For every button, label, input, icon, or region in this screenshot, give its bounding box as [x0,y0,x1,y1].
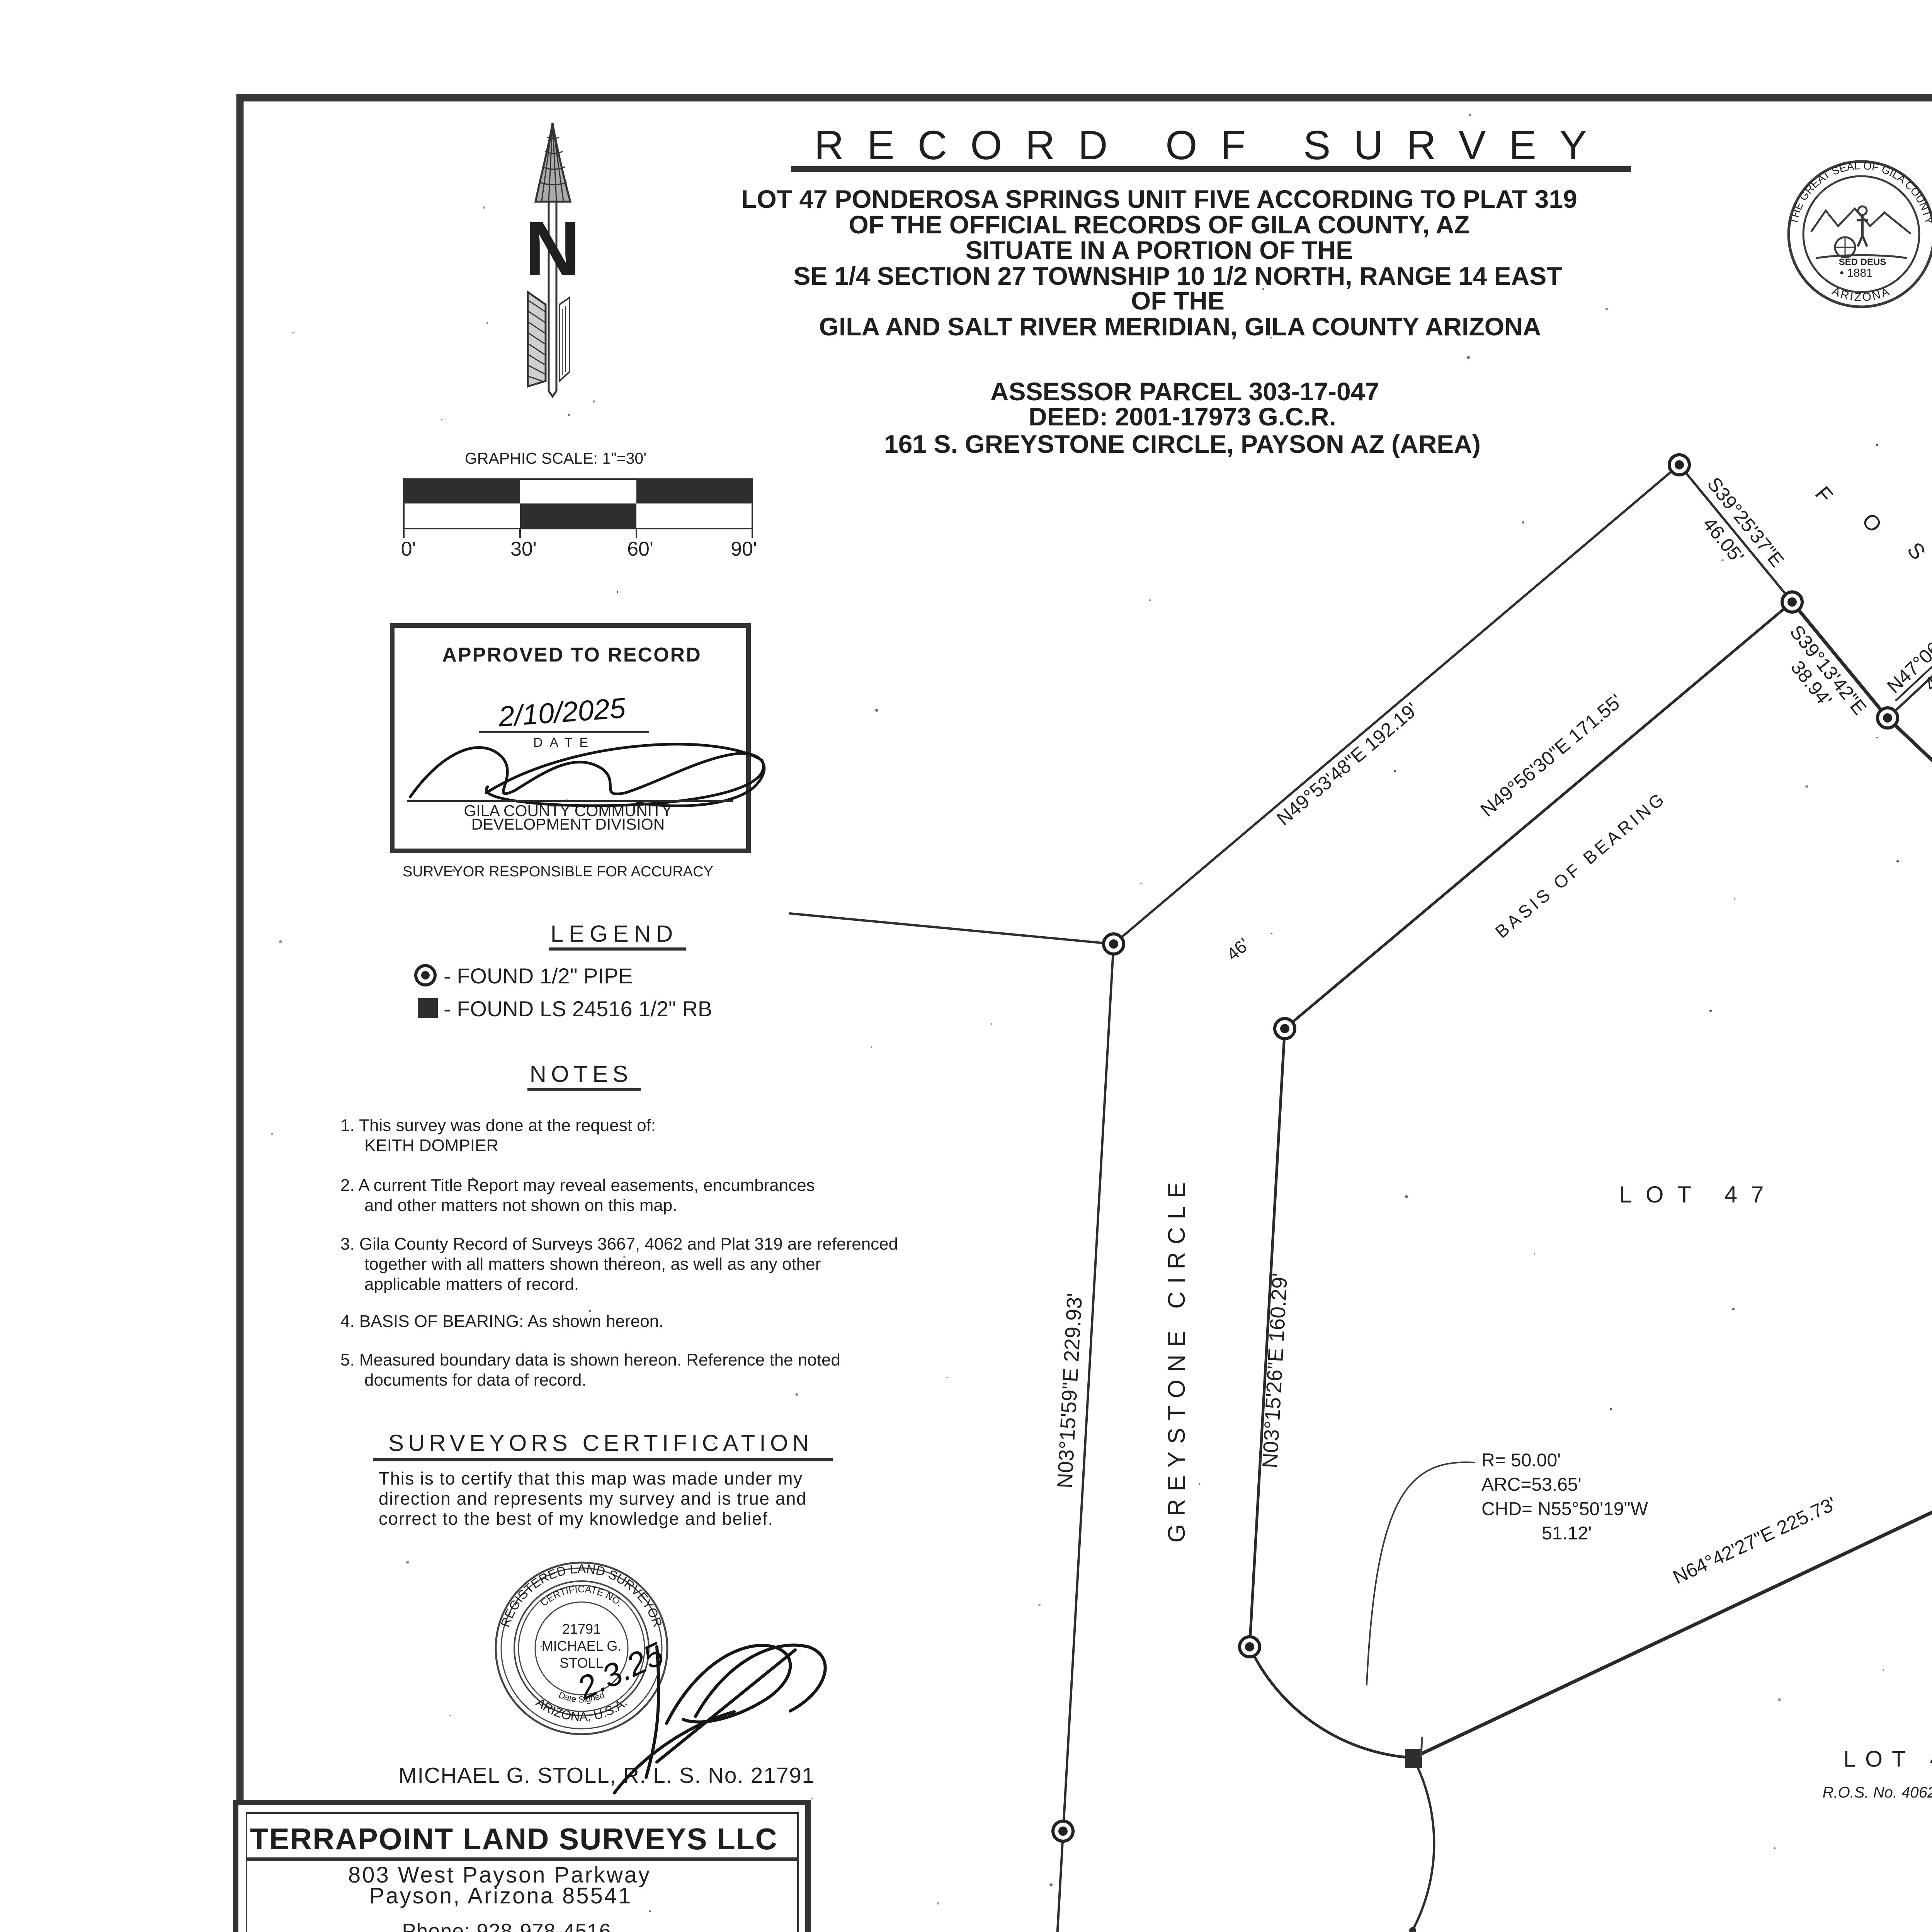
svg-text:90': 90' [731,538,757,560]
svg-text:CHD= N55°50'19"W: CHD= N55°50'19"W [1481,1499,1648,1519]
svg-text:TERRAPOINT LAND SURVEYS LLC: TERRAPOINT LAND SURVEYS LLC [250,1822,778,1856]
svg-text:30': 30' [510,538,537,560]
svg-text:• 1881: • 1881 [1840,267,1873,279]
svg-text:5. Measured boundary data is s: 5. Measured boundary data is shown hereo… [340,1350,840,1369]
svg-text:3. Gila County Record of Surve: 3. Gila County Record of Surveys 3667, 4… [340,1235,898,1253]
svg-text:2/10/2025: 2/10/2025 [497,692,627,733]
svg-text:DEED: 2001-17973 G.C.R.: DEED: 2001-17973 G.C.R. [1029,402,1336,431]
svg-text:R.O.S. No. 4062 G.C.R.: R.O.S. No. 4062 G.C.R. [1823,1784,1932,1801]
svg-text:60': 60' [627,538,653,560]
svg-text:correct to the best of my know: correct to the best of my knowledge and … [379,1509,774,1529]
svg-text:N49°56'30"E 171.55': N49°56'30"E 171.55' [1476,690,1626,821]
svg-text:N49°53'48"E 192.19': N49°53'48"E 192.19' [1272,698,1422,830]
svg-text:GILA AND SALT RIVER MERIDIAN,: GILA AND SALT RIVER MERIDIAN, GILA COUNT… [819,312,1541,341]
svg-text:F: F [1811,481,1838,507]
svg-text:R= 50.00': R= 50.00' [1481,1450,1561,1471]
svg-text:N64°42'27"E 225.73': N64°42'27"E 225.73' [1670,1493,1840,1588]
svg-text:- FOUND 1/2" PIPE: - FOUND 1/2" PIPE [444,964,633,988]
svg-text:N: N [525,206,580,292]
svg-text:N03°15'26"E 160.29': N03°15'26"E 160.29' [1258,1272,1292,1469]
svg-text:DATE: DATE [533,735,595,750]
svg-text:NOTES: NOTES [530,1061,633,1087]
svg-text:OF THE OFFICIAL RECORDS OF GIL: OF THE OFFICIAL RECORDS OF GILA COUNTY, … [849,210,1469,239]
svg-text:4. BASIS OF BEARING: As shown: 4. BASIS OF BEARING: As shown hereon. [340,1312,663,1331]
svg-text:21791: 21791 [562,1621,601,1637]
svg-text:2. A current Title Report may: 2. A current Title Report may reveal eas… [340,1176,815,1195]
svg-text:together with all matters show: together with all matters shown thereon,… [364,1255,821,1274]
svg-text:- FOUND LS 24516 1/2" RB: - FOUND LS 24516 1/2" RB [444,997,712,1021]
svg-text:SURVEYORS CERTIFICATION: SURVEYORS CERTIFICATION [388,1430,813,1456]
svg-text:GRAPHIC SCALE: 1"=30': GRAPHIC SCALE: 1"=30' [465,449,646,467]
svg-text:46': 46' [1223,934,1253,964]
svg-text:O: O [1857,509,1887,537]
svg-text:DEVELOPMENT DIVISION: DEVELOPMENT DIVISION [471,815,665,833]
svg-text:51.12': 51.12' [1542,1523,1592,1544]
svg-text:applicable matters of record.: applicable matters of record. [364,1275,579,1294]
svg-text:ARC=53.65': ARC=53.65' [1481,1475,1582,1495]
svg-text:documents for data of record.: documents for data of record. [364,1371,587,1389]
svg-text:SURVEYOR RESPONSIBLE FOR ACCUR: SURVEYOR RESPONSIBLE FOR ACCURACY [403,864,713,880]
svg-text:LEGEND: LEGEND [551,921,679,947]
svg-text:LOT 46: LOT 46 [1844,1747,1932,1772]
svg-text:SE 1/4 SECTION 27 TOWNSHIP 10: SE 1/4 SECTION 27 TOWNSHIP 10 1/2 NORTH,… [793,262,1562,290]
svg-text:RECORD OF SURVEY: RECORD OF SURVEY [814,122,1610,168]
svg-text:GREYSTONE CIRCLE: GREYSTONE CIRCLE [1163,1175,1190,1543]
svg-text:MICHAEL G.: MICHAEL G. [542,1638,622,1654]
svg-text:ASSESSOR PARCEL 303-17-047: ASSESSOR PARCEL 303-17-047 [990,377,1379,406]
svg-text:Payson, Arizona 85541: Payson, Arizona 85541 [369,1883,633,1908]
svg-text:MICHAEL G. STOLL, R. L. S. No.: MICHAEL G. STOLL, R. L. S. No. 21791 [398,1763,815,1788]
svg-text:BASIS OF BEARING: BASIS OF BEARING [1492,787,1670,942]
svg-text:S: S [1903,537,1930,564]
svg-text:and other matters not shown on: and other matters not shown on this map. [364,1196,677,1215]
svg-text:direction and represents my su: direction and represents my survey and i… [379,1488,807,1509]
svg-text:REGISTERED LAND SURVEYOR: REGISTERED LAND SURVEYOR [498,1561,665,1629]
svg-text:ARIZONA: ARIZONA [1830,285,1892,304]
svg-text:N03°15'59"E 229.93': N03°15'59"E 229.93' [1053,1293,1087,1489]
svg-text:SITUATE IN A PORTION OF THE: SITUATE IN A PORTION OF THE [966,236,1353,264]
svg-text:This is to certify that this m: This is to certify that this map was mad… [379,1468,803,1488]
svg-text:SED DEUS: SED DEUS [1839,257,1886,267]
svg-text:1. This survey was done at the: 1. This survey was done at the request o… [340,1116,656,1135]
svg-text:LOT 47: LOT 47 [1619,1182,1777,1207]
svg-text:161 S. GREYSTONE CIRCLE, PAYSO: 161 S. GREYSTONE CIRCLE, PAYSON AZ (AREA… [884,430,1481,458]
svg-text:Phone: 928-978-4516: Phone: 928-978-4516 [402,1920,611,1932]
svg-text:0': 0' [401,538,416,560]
svg-text:APPROVED TO RECORD: APPROVED TO RECORD [442,644,701,666]
svg-text:LOT 47 PONDEROSA SPRINGS UNIT: LOT 47 PONDEROSA SPRINGS UNIT FIVE ACCOR… [741,185,1577,213]
svg-text:OF THE: OF THE [1131,286,1225,315]
svg-text:KEITH DOMPIER: KEITH DOMPIER [364,1136,498,1155]
